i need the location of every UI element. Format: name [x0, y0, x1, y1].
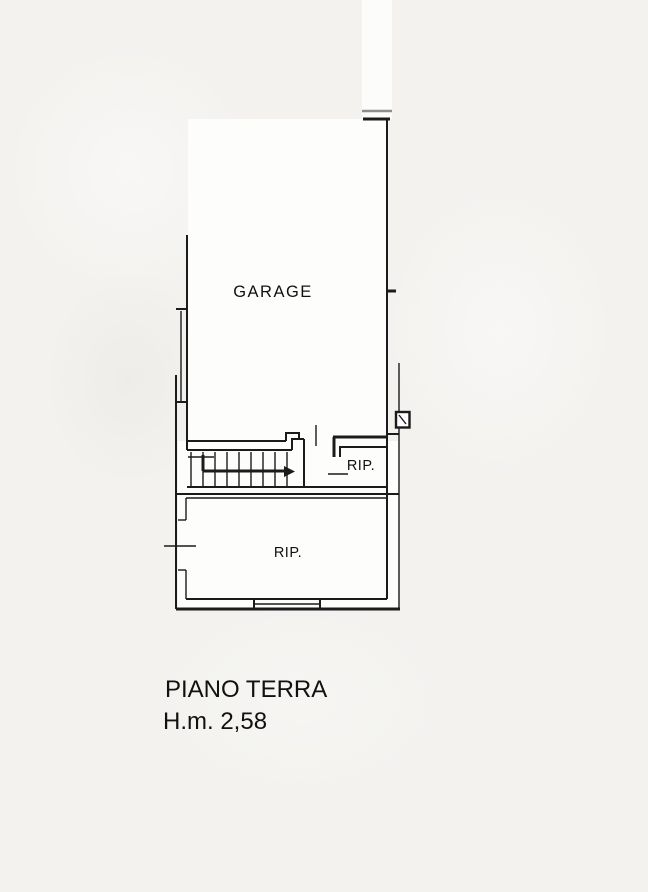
floor-height-note: H.m. 2,58	[163, 708, 267, 735]
storage-upper-label: RIP.	[347, 458, 375, 474]
garage-label: GARAGE	[233, 283, 313, 301]
floor-plan-sheet: GARAGE RIP. RIP. PIANO TERRA H.m. 2,58	[0, 0, 648, 892]
floor-plan-drawing: GARAGE RIP. RIP. PIANO TERRA H.m. 2,58	[0, 0, 648, 892]
floor-title: PIANO TERRA	[165, 676, 327, 703]
storage-lower-label: RIP.	[274, 545, 302, 561]
right-wall-window-icon	[396, 412, 410, 428]
plan-interior-fill	[178, 119, 398, 608]
entry-cut-lines	[362, 111, 392, 119]
